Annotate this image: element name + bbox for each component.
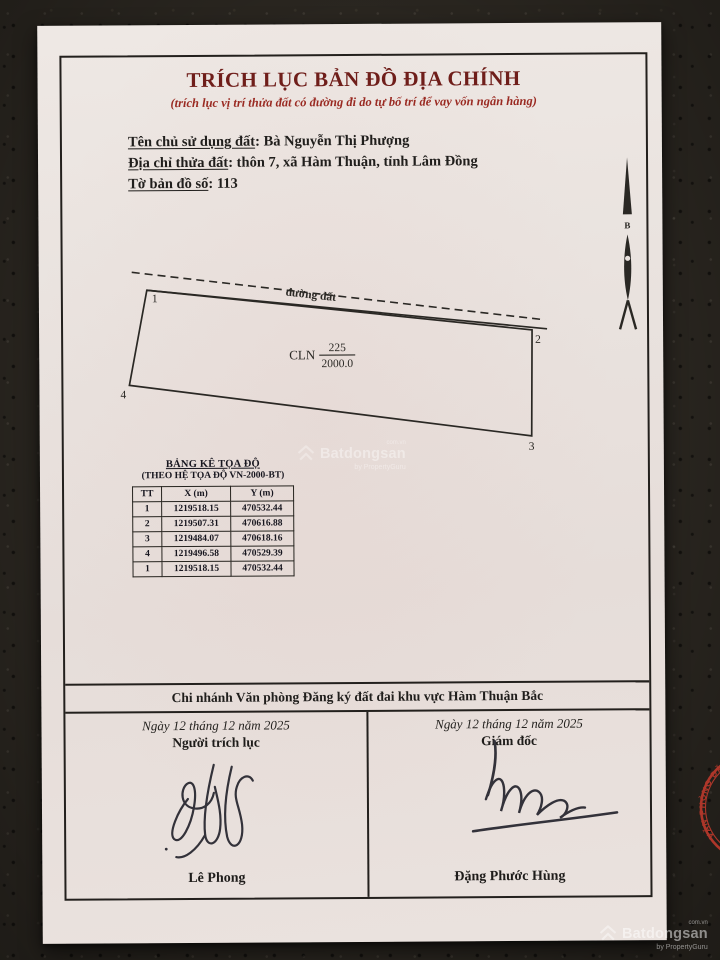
separator: : xyxy=(208,176,213,192)
cell: 470618.16 xyxy=(231,531,294,546)
separator: : xyxy=(228,155,233,171)
table-row: 11219518.15470532.44 xyxy=(133,561,294,577)
parcel-map: đường đất 1 2 3 4 CLN 225 2000.0 xyxy=(63,249,648,468)
cell: 1219518.15 xyxy=(162,501,231,516)
extractor-date: Ngày 12 tháng 12 năm 2025 xyxy=(65,717,366,735)
road-label: đường đất xyxy=(285,285,337,304)
parcel-address-value: thôn 7, xã Hàm Thuận, tỉnh Lâm Đồng xyxy=(237,153,478,170)
photo-of-cadastral-document: { "document": { "title": "TRÍCH LỤC BẢN … xyxy=(0,0,720,960)
director-name: Đặng Phước Hùng xyxy=(369,868,650,886)
extractor-name: Lê Phong xyxy=(66,870,367,888)
table-row: 31219484.07470618.16 xyxy=(133,531,294,547)
cell: 1 xyxy=(133,562,162,577)
document-paper: TRÍCH LỤC BẢN ĐỒ ĐỊA CHÍNH (trích lục vị… xyxy=(37,22,667,944)
map-sheet-value: 113 xyxy=(217,176,238,192)
cell: 470616.88 xyxy=(231,516,294,531)
coordinate-table-header-row: TT X (m) Y (m) xyxy=(133,486,294,502)
watermark-domain: com.vn xyxy=(688,920,707,926)
signature-section: Chi nhánh Văn phòng Đăng ký đất đai khu … xyxy=(65,680,650,899)
extractor-column: Ngày 12 tháng 12 năm 2025 Người trích lụ… xyxy=(65,712,369,899)
separator: : xyxy=(255,134,260,150)
cell: 3 xyxy=(133,532,162,547)
cell: 470532.44 xyxy=(231,561,294,576)
north-label: B xyxy=(624,220,630,230)
cell: 1219484.07 xyxy=(162,531,231,546)
road-dashed-line xyxy=(132,270,545,323)
vertex-label-2: 2 xyxy=(535,334,541,346)
cell: 1 xyxy=(133,502,162,517)
extractor-signature xyxy=(154,758,277,863)
director-signature xyxy=(465,736,626,847)
cell: 4 xyxy=(133,547,162,562)
cell: 1219518.15 xyxy=(162,561,231,576)
document-border-frame: TRÍCH LỤC BẢN ĐỒ ĐỊA CHÍNH (trích lục vị… xyxy=(59,52,652,901)
document-subtitle: (trích lục vị trí thửa đất có đường đi d… xyxy=(62,93,646,112)
cell: 1219507.31 xyxy=(162,516,231,531)
owner-info-block: Tên chủ sử dụng đất: Bà Nguyễn Thị Phượn… xyxy=(128,129,646,195)
svg-text:VĂN PHÒNG ĐĂNG KÝ ĐẤT ĐAI TỈNH: VĂN PHÒNG ĐĂNG KÝ ĐẤT ĐAI TỈNH LÂM ĐỒNG xyxy=(698,750,720,841)
document-title: TRÍCH LỤC BẢN ĐỒ ĐỊA CHÍNH xyxy=(61,65,645,94)
watermark-byline: by PropertyGuru xyxy=(656,944,707,951)
cell: 470532.44 xyxy=(231,501,294,516)
land-use-code: CLN xyxy=(289,347,316,362)
col-header-x: X (m) xyxy=(162,486,231,501)
coordinate-table-title: BẢNG KÊ TỌA ĐỘ xyxy=(110,458,316,470)
table-row: 21219507.31470616.88 xyxy=(133,516,294,532)
parcel-address-label: Địa chỉ thửa đất xyxy=(128,155,228,172)
table-row: 41219496.58470529.39 xyxy=(133,546,294,562)
cell: 2 xyxy=(133,517,162,532)
map-sheet-label: Tờ bản đồ số xyxy=(128,176,208,192)
owner-name-label: Tên chủ sử dụng đất xyxy=(128,134,255,151)
vertex-label-4: 4 xyxy=(120,389,126,401)
map-sheet-line: Tờ bản đồ số: 113 xyxy=(128,171,646,195)
col-header-y: Y (m) xyxy=(231,486,294,501)
parcel-area: 2000.0 xyxy=(321,358,353,370)
director-date: Ngày 12 tháng 12 năm 2025 xyxy=(368,715,649,733)
official-red-stamp: VĂN PHÒNG ĐĂNG KÝ ĐẤT ĐAI TỈNH LÂM ĐỒNG … xyxy=(698,750,720,865)
coordinate-table: TT X (m) Y (m) 11219518.15470532.44 2121… xyxy=(132,485,295,577)
office-title: Chi nhánh Văn phòng Đăng ký đất đai khu … xyxy=(65,680,649,714)
cell: 1219496.58 xyxy=(162,546,231,561)
vertex-label-3: 3 xyxy=(529,441,535,453)
col-header-tt: TT xyxy=(133,487,162,502)
coordinate-table-subtitle: (THEO HỆ TỌA ĐỘ VN-2000-BT) xyxy=(110,470,316,481)
director-column: Ngày 12 tháng 12 năm 2025 Giám đốc xyxy=(368,710,650,897)
stamp-ring-text: VĂN PHÒNG ĐĂNG KÝ ĐẤT ĐAI TỈNH LÂM ĐỒNG xyxy=(698,750,720,841)
vertex-label-1: 1 xyxy=(152,293,158,305)
cell: 470529.39 xyxy=(231,546,294,561)
table-row: 11219518.15470532.44 xyxy=(133,501,294,517)
owner-name-value: Bà Nguyễn Thị Phượng xyxy=(264,133,410,150)
parcel-number: 225 xyxy=(329,342,347,354)
coordinate-table-block: BẢNG KÊ TỌA ĐỘ (THEO HỆ TỌA ĐỘ VN-2000-B… xyxy=(110,458,317,577)
extractor-role: Người trích lục xyxy=(66,734,367,752)
